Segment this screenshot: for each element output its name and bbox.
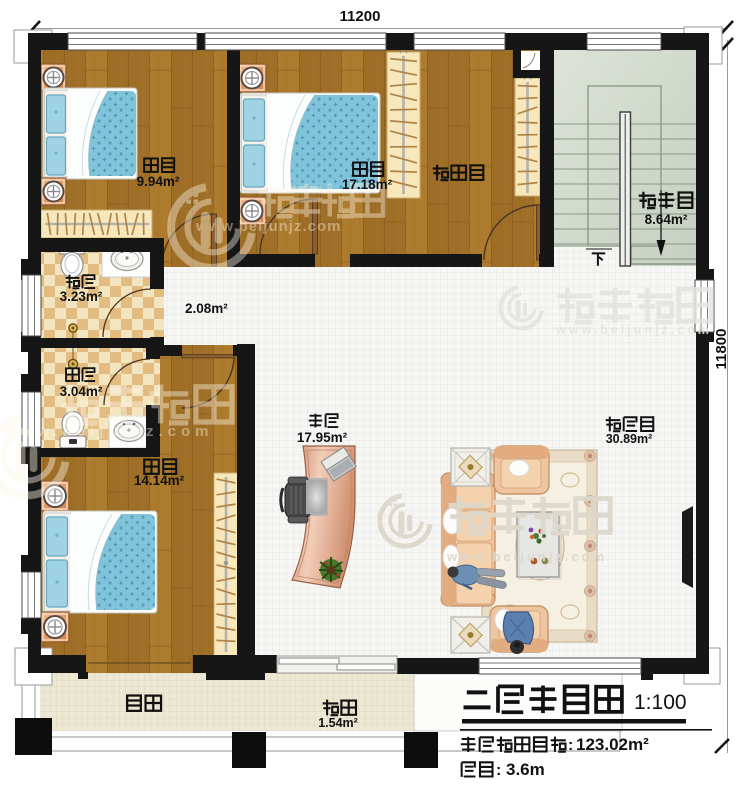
svg-text:14.14m²: 14.14m² [134,473,185,488]
svg-text::: : [496,762,501,779]
svg-text:8.64m²: 8.64m² [645,212,688,227]
svg-text:www.beijunjz.com: www.beijunjz.com [555,323,712,337]
svg-text:9.94m²: 9.94m² [137,174,180,189]
svg-text:123.02m²: 123.02m² [576,735,649,754]
svg-text:1.54m²: 1.54m² [318,716,358,730]
svg-text:3.23m²: 3.23m² [60,289,103,304]
svg-text::: : [568,737,573,754]
svg-text:17.18m²: 17.18m² [342,177,393,192]
svg-text:www.beijunjz.com: www.beijunjz.com [3,423,213,440]
svg-text:1:100: 1:100 [634,691,687,714]
svg-text:2.08m²: 2.08m² [185,301,228,316]
svg-text:11800: 11800 [713,329,730,370]
svg-text:www.beijunjz.com: www.beijunjz.com [446,549,607,564]
svg-text:3.04m²: 3.04m² [60,384,103,399]
svg-text:3.6m: 3.6m [506,760,545,779]
svg-text:17.95m²: 17.95m² [297,430,348,445]
svg-text:30.89m²: 30.89m² [606,432,653,446]
svg-text:www.beijunjz.com: www.beijunjz.com [195,218,341,235]
svg-text:11200: 11200 [340,8,381,25]
